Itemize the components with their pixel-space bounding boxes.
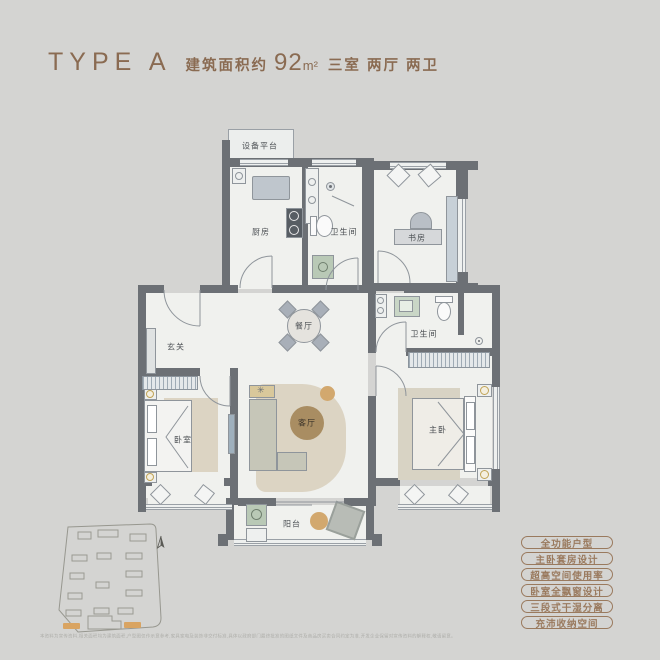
feature-tag: 全功能户型 [521, 536, 613, 549]
room-label-living: 客厅 [298, 418, 316, 429]
room-label-dining: 餐厅 [295, 321, 313, 332]
feature-tag: 卧室全飘窗设计 [521, 584, 613, 597]
feature-tag: 充沛收纳空间 [521, 616, 613, 629]
room-label-study: 书房 [408, 233, 426, 244]
room-label-master: 主卧 [429, 425, 447, 436]
room-label-bathroom2: 卫生间 [411, 329, 438, 340]
north-arrow-icon [152, 534, 170, 552]
room-label-bedroom: 卧室 [174, 435, 192, 446]
floorplan-poster: TYPE A 建筑面积约 92 m² 三室 两厅 两卫 [0, 0, 660, 660]
feature-tag-list: 全功能户型 主卧套房设计 超高空间使用率 卧室全飘窗设计 三段式干湿分离 充沛收… [521, 536, 613, 629]
feature-tag: 超高空间使用率 [521, 568, 613, 581]
room-label-equipment-platform: 设备平台 [242, 141, 278, 152]
room-label-kitchen: 厨房 [252, 227, 270, 238]
room-label-balcony: 阳台 [283, 519, 301, 530]
feature-tag: 三段式干湿分离 [521, 600, 613, 613]
room-label-bathroom1: 卫生间 [331, 227, 358, 238]
disclaimer-text: 本资料为宣传资料,相关面积均为建筑面积,户型图仅作示意参考,家具家电及装饰非交付… [40, 633, 634, 639]
feature-tag: 主卧套房设计 [521, 552, 613, 565]
room-label-foyer: 玄关 [167, 342, 185, 353]
